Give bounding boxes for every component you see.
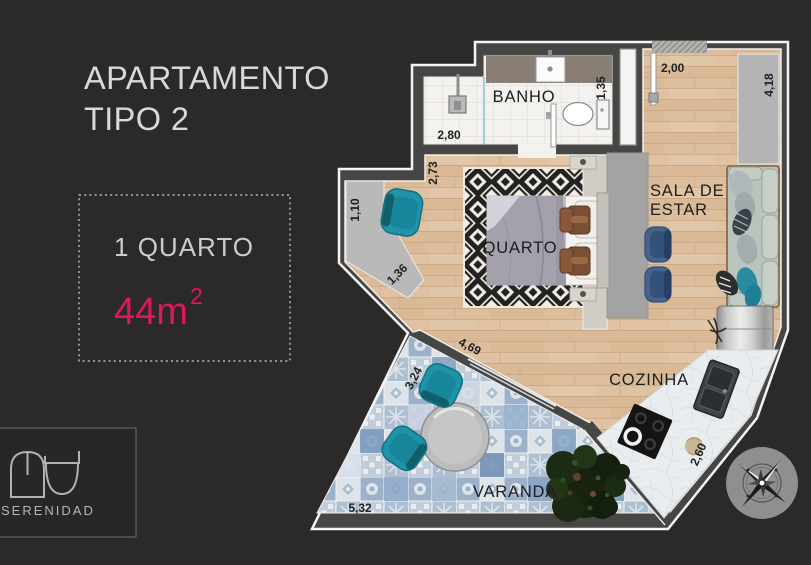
svg-text:1,10: 1,10 [348,198,362,222]
svg-text:5,32: 5,32 [348,501,372,515]
svg-text:4,18: 4,18 [762,73,776,97]
svg-text:2,73: 2,73 [426,161,440,185]
svg-text:2: 2 [190,283,203,309]
svg-text:APARTAMENTO: APARTAMENTO [84,60,330,96]
svg-text:BANHO: BANHO [493,88,556,106]
svg-text:TIPO 2: TIPO 2 [84,101,189,137]
svg-text:SALA DE: SALA DE [650,182,724,200]
svg-text:COZINHA: COZINHA [609,371,689,389]
svg-text:SERENIDAD: SERENIDAD [1,503,95,518]
svg-text:1,35: 1,35 [594,76,608,100]
svg-text:QUARTO: QUARTO [483,239,558,257]
svg-text:2,00: 2,00 [661,61,685,75]
svg-text:VARANDA: VARANDA [473,483,557,501]
svg-text:1 QUARTO: 1 QUARTO [114,232,254,262]
svg-text:44m: 44m [114,291,188,333]
svg-text:2,80: 2,80 [437,128,461,142]
svg-text:ESTAR: ESTAR [650,201,708,219]
